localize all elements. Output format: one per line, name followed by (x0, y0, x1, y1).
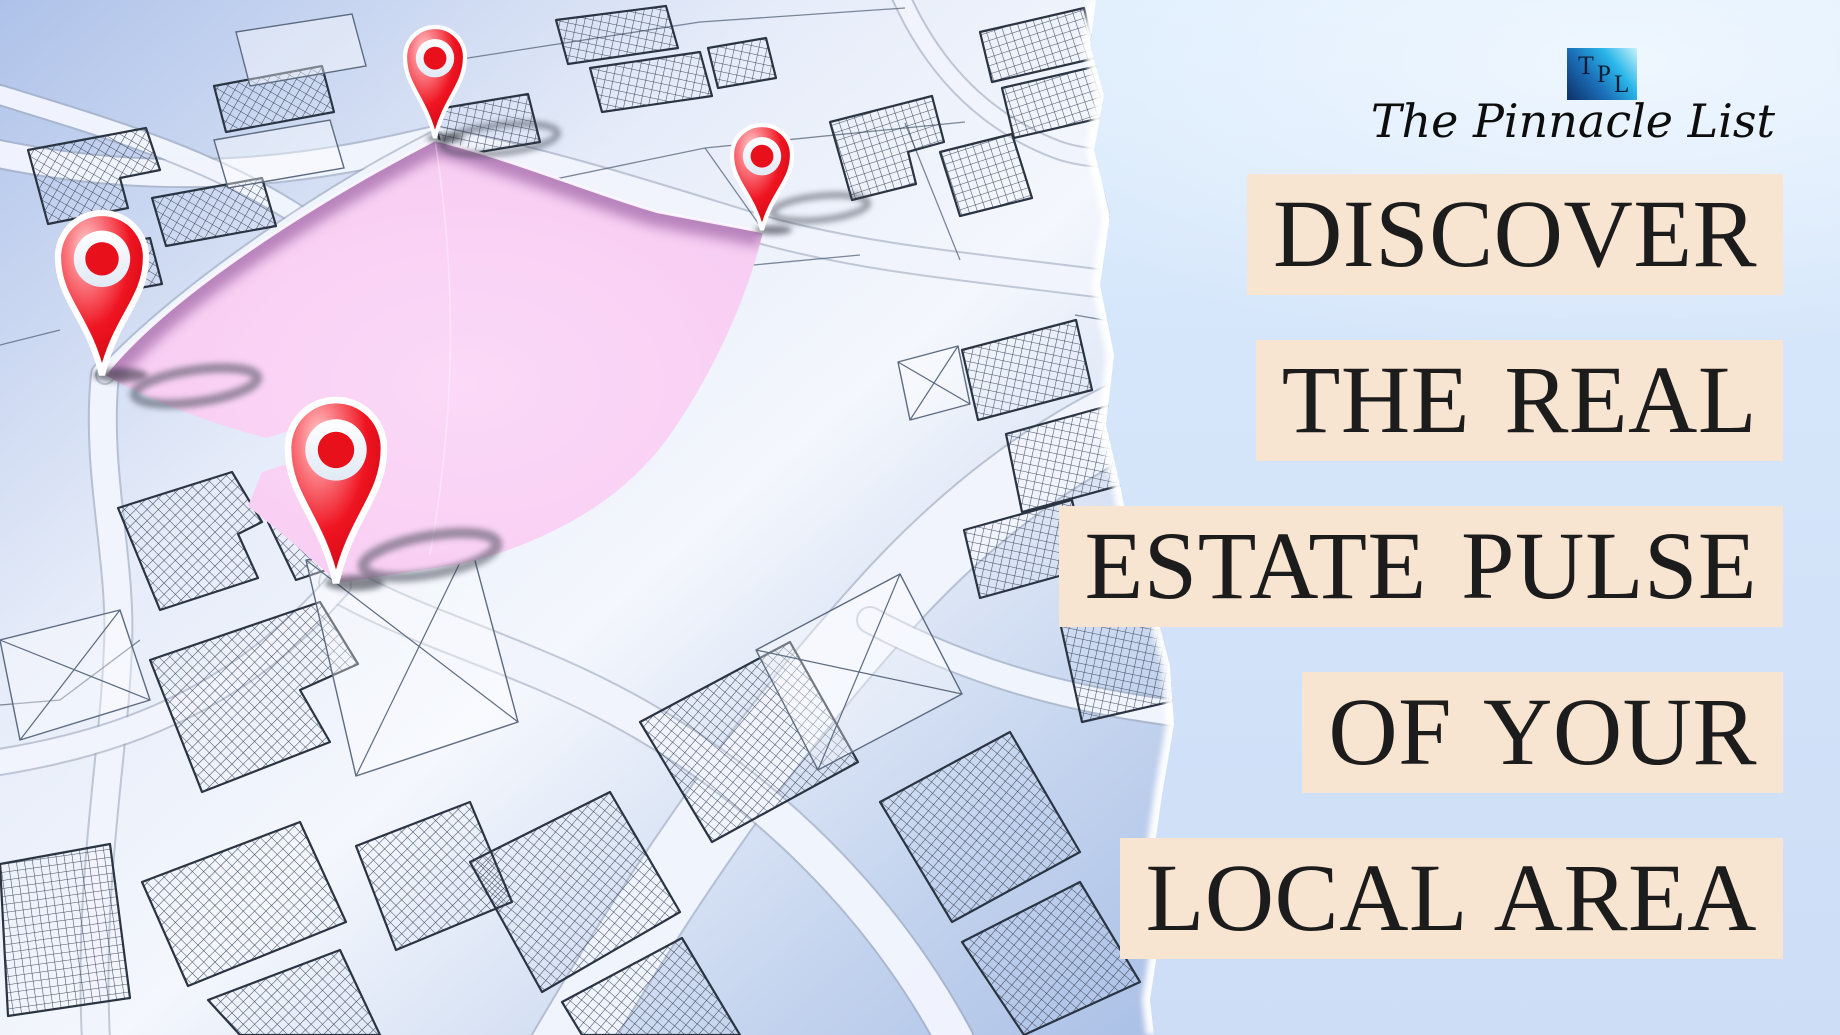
headline-line-4: OF YOUR (1302, 672, 1783, 793)
logo-letter-p: P (1597, 62, 1611, 87)
headline-line-3: ESTATE PULSE (1059, 506, 1783, 627)
brand-logo-mark: T P L (1567, 48, 1637, 100)
headline-block: DISCOVER THE REAL ESTATE PULSE OF YOUR L… (1059, 174, 1783, 959)
headline-line-1: DISCOVER (1247, 174, 1783, 295)
brand-logo-script: The Pinnacle List (1371, 94, 1775, 148)
map-svg (0, 0, 1190, 1035)
headline-line-2: THE REAL (1256, 340, 1783, 461)
logo-letter-t: T (1578, 53, 1594, 79)
headline-line-5: LOCAL AREA (1120, 838, 1783, 959)
hatched-parcel (0, 844, 130, 1016)
cadastral-map-illustration (0, 0, 1190, 1035)
hatched-parcel (708, 38, 776, 88)
hero-banner: { "brand": { "monogram": { "t": "T", "p"… (0, 0, 1840, 1035)
